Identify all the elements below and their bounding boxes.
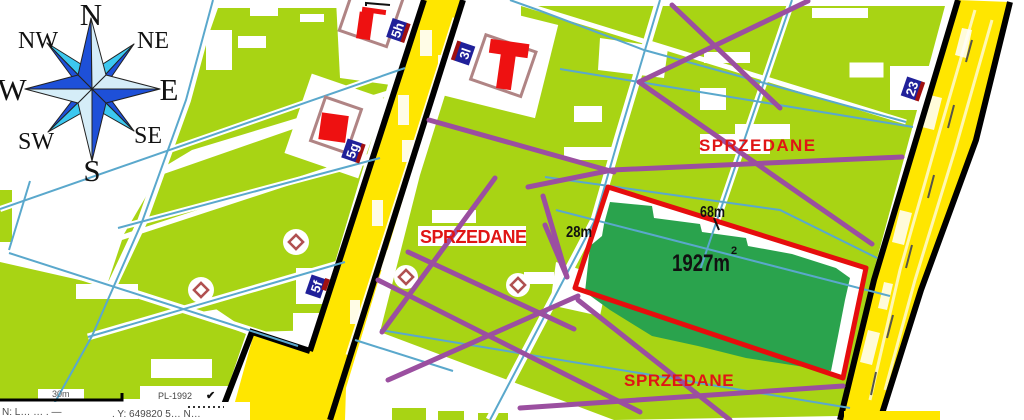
svg-text:S: S (83, 153, 100, 188)
svg-text:N: L… … . —: N: L… … . — (2, 407, 61, 418)
svg-text:SE: SE (134, 123, 162, 149)
svg-text:68m: 68m (700, 204, 725, 221)
svg-text:30m: 30m (52, 389, 70, 399)
svg-text:. Y: 649820 5… N…: . Y: 649820 5… N… (112, 409, 201, 420)
svg-text:NE: NE (137, 28, 169, 54)
svg-text:1927m: 1927m (672, 250, 730, 277)
svg-text:✔: ✔ (206, 390, 215, 402)
svg-text:SPRZEDANE: SPRZEDANE (624, 371, 734, 390)
svg-text:SW: SW (18, 129, 54, 155)
svg-text:NW: NW (18, 28, 58, 54)
svg-text:N: N (80, 0, 102, 32)
svg-text:SPRZEDANE: SPRZEDANE (699, 136, 816, 155)
svg-text:28m: 28m (566, 224, 592, 241)
svg-text:PL-1992: PL-1992 (158, 391, 192, 401)
svg-text:2: 2 (731, 245, 737, 257)
svg-text:W: W (0, 72, 27, 107)
svg-text:E: E (160, 72, 179, 107)
svg-text:SPRZEDANE: SPRZEDANE (420, 227, 527, 247)
